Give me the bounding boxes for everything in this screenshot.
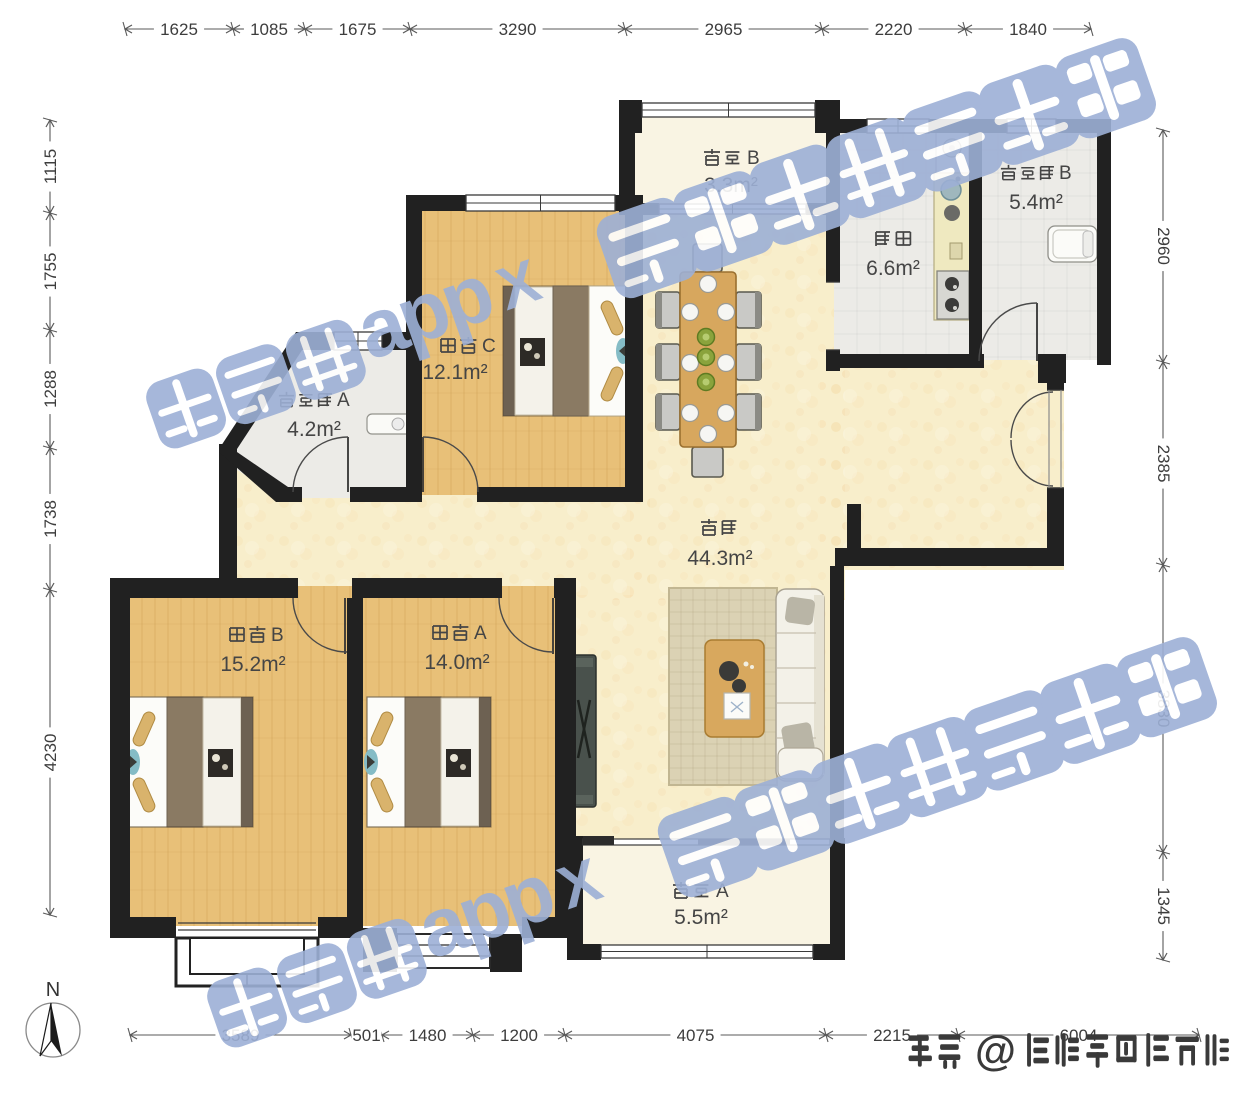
svg-text:1345: 1345 (1154, 887, 1173, 925)
svg-text:3290: 3290 (499, 20, 537, 39)
svg-text:1675: 1675 (339, 20, 377, 39)
svg-text:N: N (46, 979, 60, 1001)
svg-text:A: A (474, 623, 487, 644)
svg-text:5.5m²: 5.5m² (674, 906, 728, 929)
svg-text:1085: 1085 (250, 20, 288, 39)
svg-text:2220: 2220 (875, 20, 913, 39)
svg-text:1200: 1200 (500, 1026, 538, 1045)
svg-text:14.0m²: 14.0m² (424, 651, 489, 674)
svg-text:6.6m²: 6.6m² (866, 257, 920, 280)
svg-text:501: 501 (352, 1026, 380, 1045)
svg-text:4230: 4230 (41, 734, 60, 772)
svg-text:1625: 1625 (160, 20, 198, 39)
svg-text:4.2m²: 4.2m² (287, 418, 341, 441)
svg-text:1755: 1755 (41, 253, 60, 291)
svg-text:5.4m²: 5.4m² (1009, 191, 1063, 214)
svg-text:1480: 1480 (409, 1026, 447, 1045)
svg-text:15.2m²: 15.2m² (220, 653, 285, 676)
svg-text:1738: 1738 (41, 500, 60, 538)
svg-text:44.3m²: 44.3m² (687, 547, 752, 570)
svg-text:2960: 2960 (1154, 227, 1173, 265)
svg-text:1840: 1840 (1009, 20, 1047, 39)
svg-text:2385: 2385 (1154, 445, 1173, 483)
svg-text:1288: 1288 (41, 370, 60, 408)
svg-text:B: B (1059, 163, 1072, 184)
svg-text:4075: 4075 (677, 1026, 715, 1045)
svg-text:2965: 2965 (705, 20, 743, 39)
svg-text:B: B (271, 625, 284, 646)
svg-text:1115: 1115 (41, 149, 60, 184)
